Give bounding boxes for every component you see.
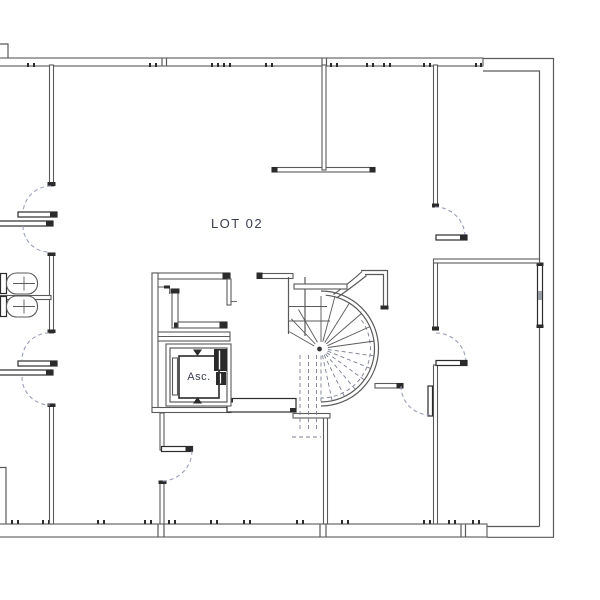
door-swing-arc: [401, 386, 430, 415]
elevator-door-panel: [214, 349, 227, 371]
right-partition-upper: [434, 65, 438, 207]
window-ticks: [12, 63, 481, 524]
elevator-counterweight: [173, 358, 178, 395]
right-partition-lower: [434, 365, 438, 524]
stair-treads-visible: [289, 296, 374, 348]
door-leaf: [428, 386, 433, 416]
floor-plan-page: Asc.: [0, 0, 600, 600]
core-west-wall: [152, 273, 158, 412]
left-partition-middle: [50, 253, 54, 333]
door-swing-arc: [23, 226, 49, 252]
elevator: Asc.: [166, 344, 231, 406]
stair-south-stub: [293, 414, 330, 419]
toilet: [1, 296, 38, 317]
door-swing-arc: [23, 186, 51, 214]
center-partition-upper: [322, 65, 326, 170]
stair-straight-flight: [289, 277, 348, 336]
right-room-divider: [434, 259, 540, 263]
door-swing-arc: [436, 333, 466, 363]
stair-landing-band: [227, 399, 296, 413]
door-right-middle: [436, 333, 467, 366]
door-swing-arc: [435, 207, 465, 237]
core-east-wall: [227, 279, 231, 305]
spiral-staircase: [289, 271, 389, 438]
core-north-wall: [152, 273, 230, 279]
lobby-wall-upper: [160, 413, 164, 450]
stair-east-wall-inner: [365, 275, 384, 309]
door-swing-arc: [22, 377, 50, 405]
bottom-window-band: [0, 524, 487, 537]
floor-plan-canvas: Asc.: [0, 0, 600, 600]
stair-treads-hidden: [292, 350, 375, 438]
door-lobby: [161, 446, 193, 481]
right-partition-middle: [434, 263, 438, 330]
core-inner-wall: [172, 289, 178, 328]
door-left-upper: [0, 186, 57, 252]
bottom-left-wall-stub: [0, 468, 6, 525]
elevator-label: Asc.: [187, 371, 210, 383]
top-left-wall-stub: [0, 44, 8, 58]
door-swing-arc: [161, 451, 192, 481]
door-left-lower: [0, 333, 57, 405]
lobby-wall-lower: [160, 481, 164, 524]
left-partition-upper: [50, 65, 54, 186]
toilet-cistern: [1, 274, 7, 294]
door-right-upper: [435, 207, 467, 241]
right-window: [537, 263, 544, 329]
exterior-walls: [0, 44, 554, 538]
toilet-cistern: [1, 297, 7, 317]
top-window-band: [0, 58, 483, 66]
lot-label: LOT 02: [211, 216, 263, 231]
lobby-south-wall: [152, 408, 231, 413]
stair-walkline: [321, 320, 370, 398]
center-partition-lower: [324, 415, 328, 524]
stair-newel: [317, 347, 322, 352]
door-leaf: [0, 370, 53, 375]
toilet: [1, 273, 38, 294]
left-partition-lower: [50, 404, 54, 524]
right-wall-inner-upper: [483, 71, 540, 263]
door-swing-arc: [22, 333, 49, 360]
door-leaf: [0, 221, 53, 226]
door-stair-room: [401, 386, 433, 416]
interior-walls: [0, 65, 540, 524]
bottom-window-ticks: [12, 520, 479, 524]
